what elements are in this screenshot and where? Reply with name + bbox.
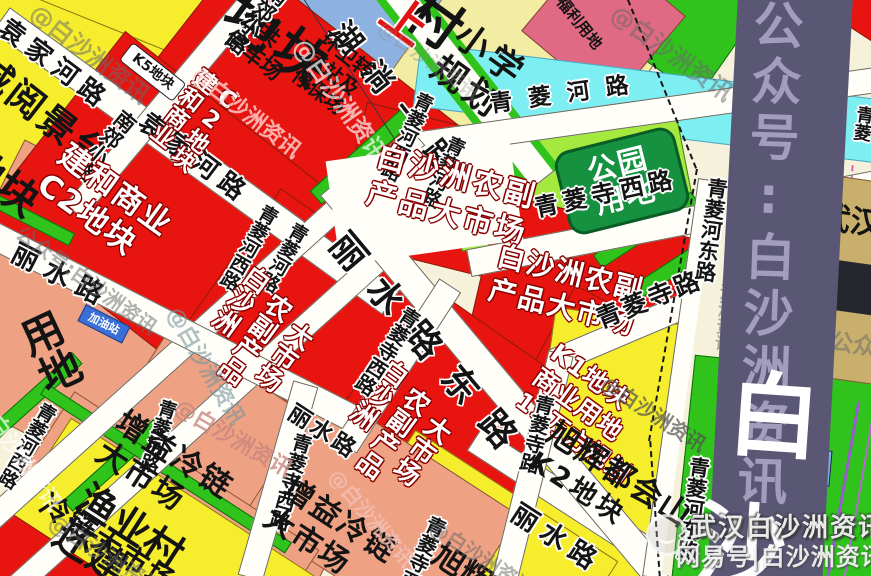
footer-watermark-line1: 武汉白沙洲资讯 xyxy=(690,514,871,544)
publisher-logo-mouth xyxy=(658,529,676,544)
planning-map: 公园 用地 地块 村 城阅景台 地块 袁家河路 袁家河路 南郊小路 南郊小路 湖… xyxy=(0,0,871,576)
publisher-band-big-char-1: 白 xyxy=(725,362,824,474)
footer-watermark-line2: 网易号|白沙洲资讯 xyxy=(676,544,871,572)
label-qingling-edge: 青菱 xyxy=(849,104,871,143)
